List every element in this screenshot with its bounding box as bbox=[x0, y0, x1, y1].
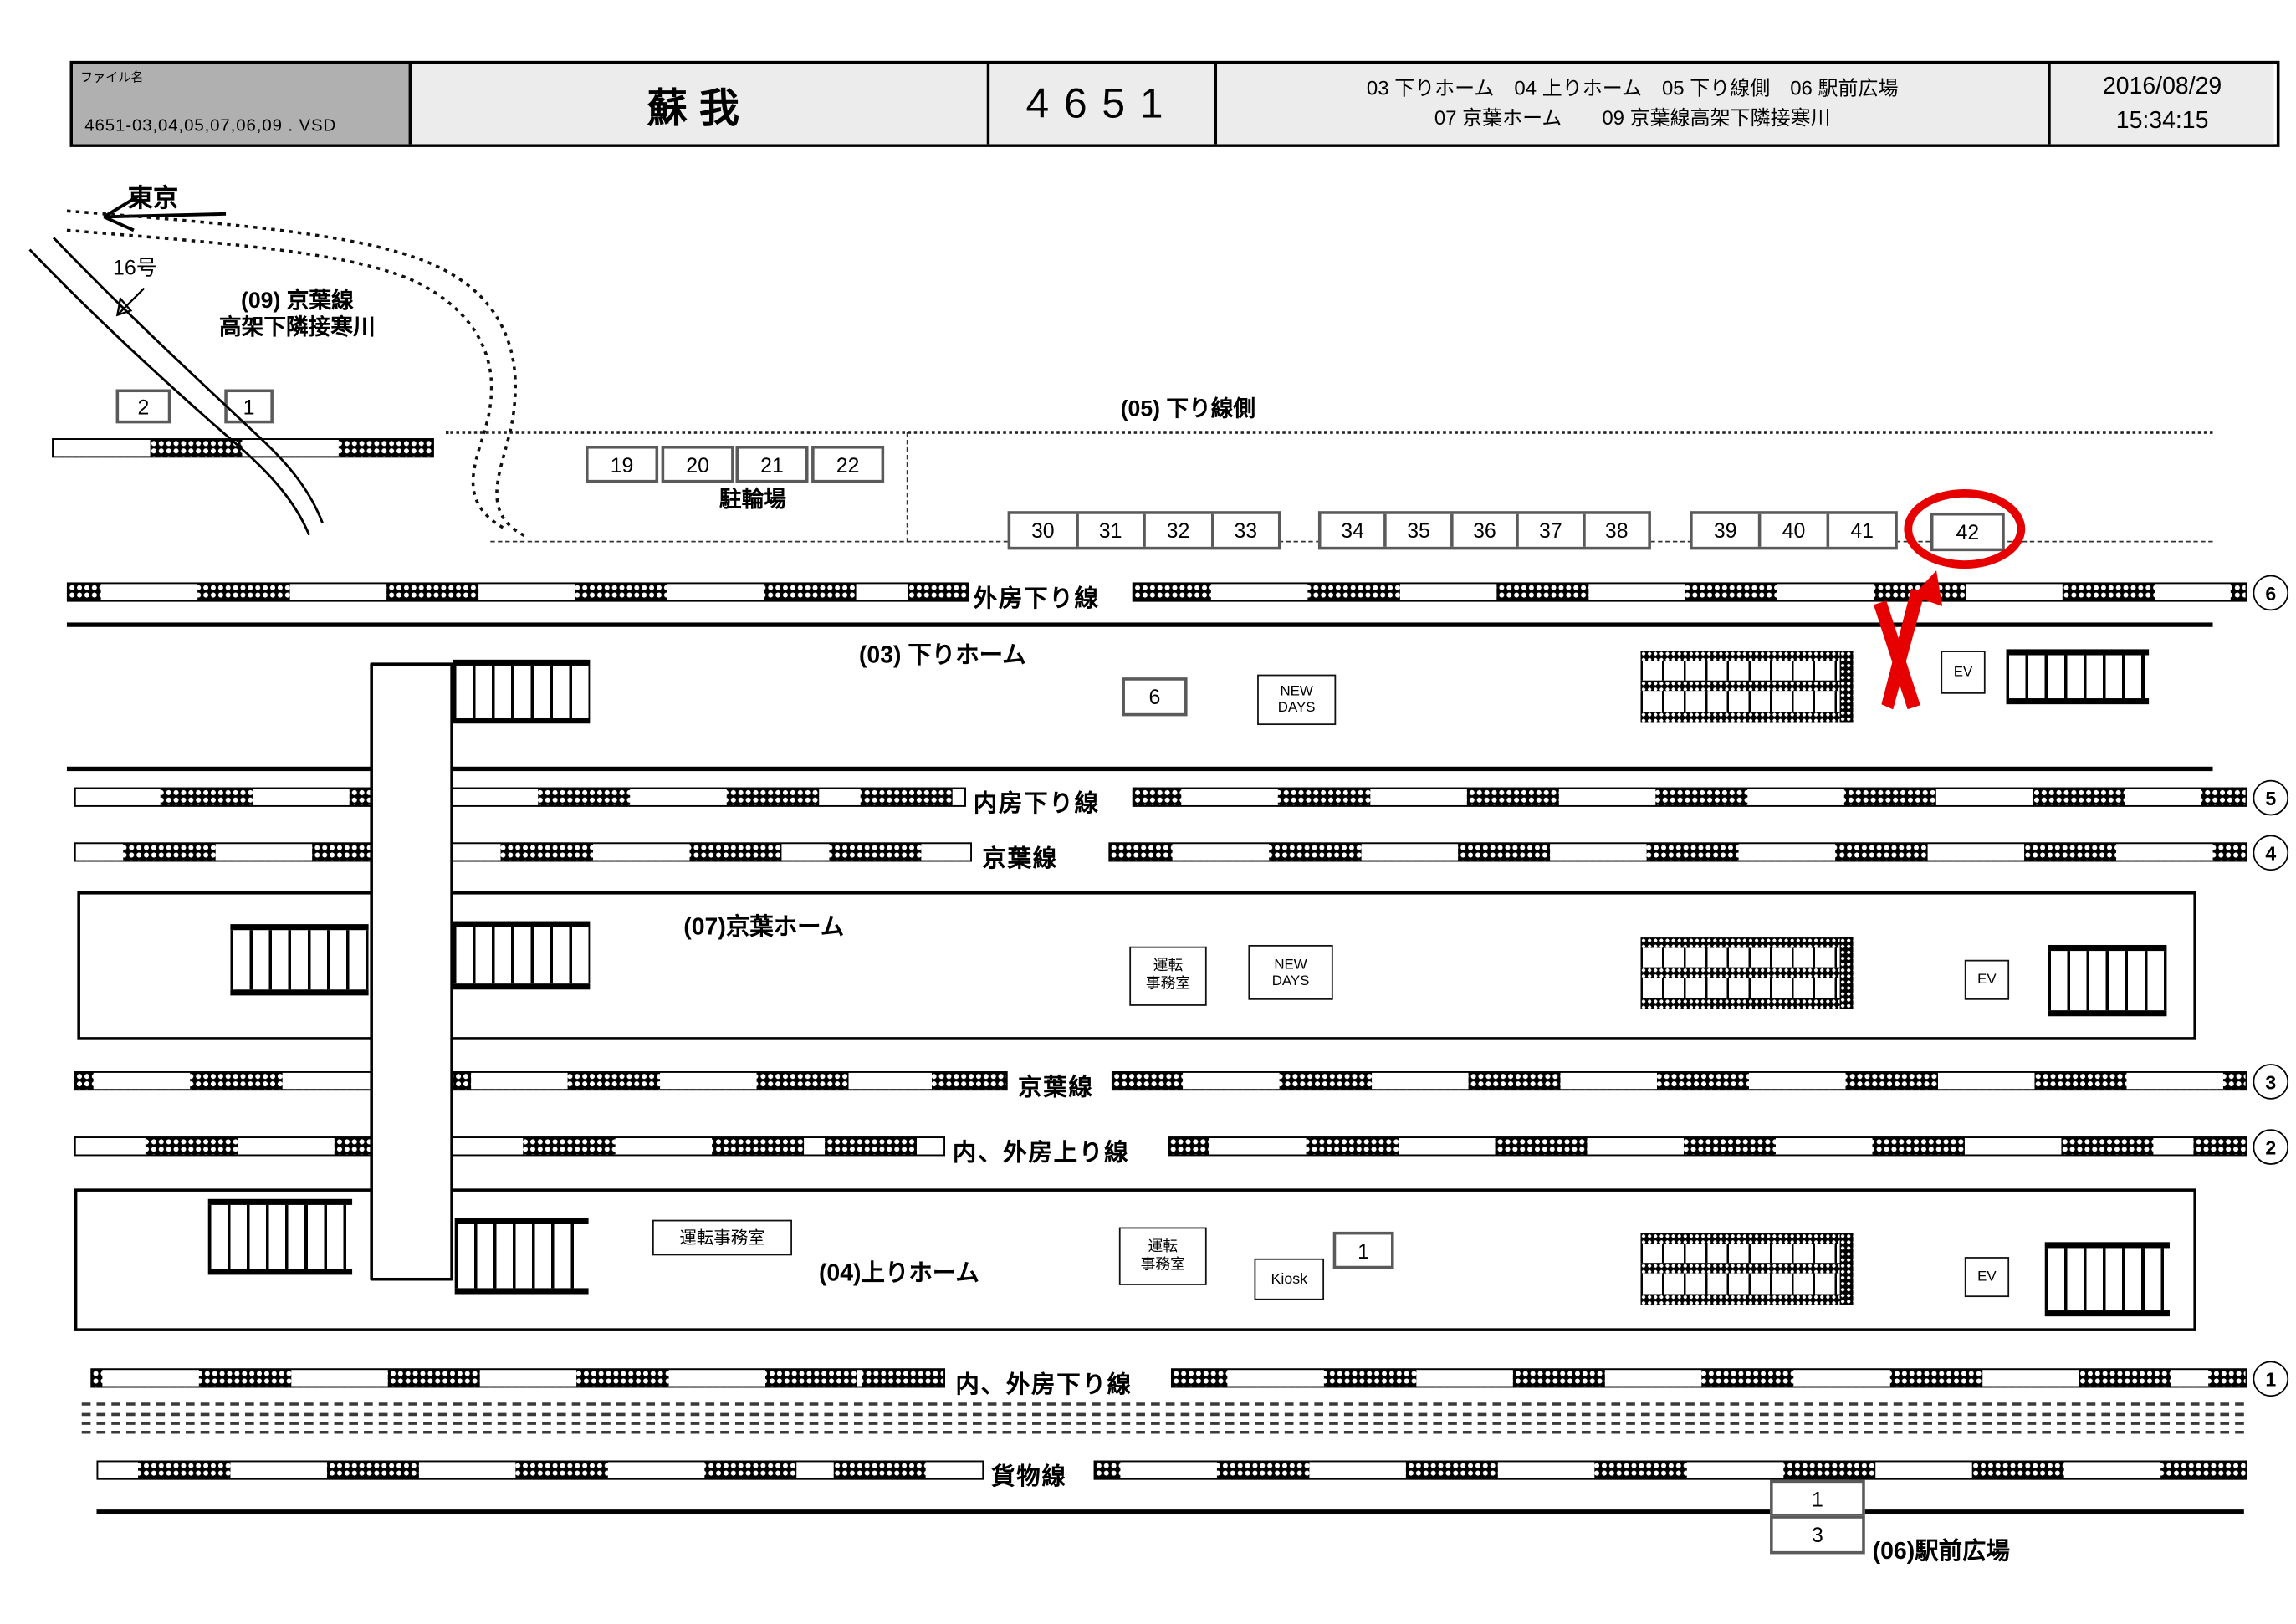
newdays-kiosk-platform03: NEW DAYS bbox=[1257, 675, 1336, 725]
file-name-label: ファイル名 bbox=[80, 69, 144, 86]
newdays-kiosk-platform07: NEW DAYS bbox=[1248, 945, 1332, 1000]
platform-07-label: (07)京葉ホーム bbox=[683, 906, 844, 942]
track-number-2: 2 bbox=[2253, 1129, 2288, 1165]
track-number-4: 4 bbox=[2253, 835, 2288, 871]
drawing-number: 4651 bbox=[989, 64, 1217, 144]
area-05-label: (05) 下り線側 bbox=[1121, 392, 1255, 423]
track-label-sotobo-down: 外房下り線 bbox=[969, 578, 1104, 614]
track-label-uchi-soto-down: 内、外房下り線 bbox=[951, 1364, 1137, 1400]
track-label-keiyo-a: 京葉線 bbox=[978, 838, 1062, 874]
track-keiyo-b-left bbox=[74, 1071, 1008, 1090]
ad-box-32: 32 bbox=[1146, 514, 1214, 547]
track-sotobo-down-left bbox=[67, 582, 969, 601]
stairs-platform07-east bbox=[2048, 945, 2166, 1016]
operations-office-platform04: 運転 事務室 bbox=[1119, 1228, 1207, 1285]
stairs-platform04-west bbox=[208, 1199, 352, 1275]
track-keiyo-a-left bbox=[74, 842, 972, 861]
platform-03-label: (03) 下りホーム bbox=[859, 635, 1026, 671]
track-uchibo-down-right bbox=[1133, 788, 2247, 807]
ad-box-40: 40 bbox=[1761, 514, 1829, 547]
ad-strip-39-41: 39 40 41 bbox=[1690, 511, 1898, 549]
date-value: 2016/08/29 bbox=[2051, 70, 2274, 105]
datetime-cell: 2016/08/29 15:34:15 bbox=[2051, 64, 2274, 144]
platform-04-label: (04)上りホーム bbox=[819, 1253, 979, 1289]
ad-strip-30-33: 30 31 32 33 bbox=[1008, 511, 1281, 549]
station-south-boundary bbox=[96, 1509, 2243, 1514]
track-label-freight: 貨物線 bbox=[987, 1456, 1071, 1492]
plaza-box-1: 1 bbox=[1770, 1480, 1865, 1517]
ad-box-22: 22 bbox=[811, 446, 884, 483]
area-09-label: (09) 京葉線 高架下隣接寒川 bbox=[178, 289, 416, 342]
legend-cell: 03 下りホーム 04 上りホーム 05 下り線側 06 駅前広場 07 京葉ホ… bbox=[1217, 64, 2051, 144]
stairs-platform03-east bbox=[2007, 649, 2150, 704]
track-freight-right bbox=[1094, 1460, 2247, 1479]
track-uchi-soto-down-right bbox=[1171, 1368, 2247, 1387]
zone05-top-boundary bbox=[446, 431, 2212, 434]
station-diagram-canvas: ファイル名 4651-03,04,05,07,06,09 . VSD 蘇我 46… bbox=[0, 0, 2296, 1624]
track-keiyo-a-right bbox=[1108, 842, 2247, 861]
track-keiyo-b-right bbox=[1112, 1071, 2247, 1090]
ad-box-19: 19 bbox=[586, 446, 658, 483]
ad-strip-34-38: 34 35 36 37 38 bbox=[1318, 511, 1651, 549]
ad-box-31: 31 bbox=[1078, 514, 1146, 547]
route-16-label: 16号 bbox=[113, 253, 157, 283]
route16-road bbox=[30, 237, 323, 534]
track-to-tokyo bbox=[52, 438, 434, 457]
escalator-platform03 bbox=[1640, 651, 1853, 722]
track-number-1: 1 bbox=[2253, 1361, 2288, 1397]
stairs-platform04-east bbox=[2045, 1242, 2170, 1316]
ad-box-33: 33 bbox=[1214, 514, 1278, 547]
ad-box-1-platform04: 1 bbox=[1333, 1232, 1394, 1269]
ad-box-20: 20 bbox=[662, 446, 734, 483]
stairs-platform07-west bbox=[230, 924, 368, 995]
track-label-uchi-soto-up: 内、外房上り線 bbox=[949, 1132, 1134, 1168]
elevator-platform07: EV bbox=[1965, 960, 2009, 1000]
platform03-top-edge bbox=[67, 622, 2213, 626]
siding-dash-4 bbox=[82, 1431, 2244, 1434]
track-uchi-soto-down-left bbox=[90, 1368, 945, 1387]
track-label-uchibo-down: 内房下り線 bbox=[969, 783, 1104, 819]
siding-dash-3 bbox=[82, 1422, 2244, 1425]
stairs-platform03 bbox=[453, 660, 590, 723]
ad-box-34: 34 bbox=[1321, 514, 1387, 547]
title-block: ファイル名 4651-03,04,05,07,06,09 . VSD 蘇我 46… bbox=[70, 61, 2280, 147]
time-value: 15:34:15 bbox=[2051, 104, 2274, 138]
elevator-platform04: EV bbox=[1965, 1257, 2009, 1297]
ad-box-37: 37 bbox=[1519, 514, 1585, 547]
track-uchibo-down-left bbox=[74, 788, 966, 807]
siding-dash-2 bbox=[82, 1413, 2244, 1417]
operations-office-platform07: 運転 事務室 bbox=[1129, 947, 1206, 1006]
kiosk-platform04: Kiosk bbox=[1255, 1259, 1325, 1300]
track-uchi-soto-up-right bbox=[1168, 1136, 2247, 1156]
plaza-06-label: (06)駅前広場 bbox=[1873, 1530, 2010, 1566]
bicycle-parking-label: 駐輪場 bbox=[719, 483, 786, 513]
plaza-box-3: 3 bbox=[1770, 1515, 1865, 1554]
ad-box-42-highlighted: 42 bbox=[1930, 513, 2005, 551]
track-uchi-soto-up-left bbox=[74, 1136, 945, 1156]
ad-box-30: 30 bbox=[1010, 514, 1078, 547]
ad-box-39: 39 bbox=[1693, 514, 1762, 547]
ad-box-6: 6 bbox=[1122, 677, 1187, 716]
ad-box-1: 1 bbox=[224, 389, 274, 423]
legend-line-1: 03 下りホーム 04 上りホーム 05 下り線側 06 駅前広場 bbox=[1217, 74, 2048, 105]
station-title: 蘇我 bbox=[412, 64, 989, 144]
escalator-platform04 bbox=[1640, 1233, 1853, 1305]
file-name-value: 4651-03,04,05,07,06,09 . VSD bbox=[84, 117, 336, 135]
ad-box-41: 41 bbox=[1829, 514, 1895, 547]
zone05-divider bbox=[907, 432, 908, 542]
direction-tokyo-label: 東京 bbox=[128, 176, 178, 213]
track-label-keiyo-b: 京葉線 bbox=[1014, 1067, 1098, 1103]
legend-line-2: 07 京葉ホーム 09 京葉線高架下隣接寒川 bbox=[1217, 104, 2048, 134]
siding-dash-1 bbox=[82, 1402, 2244, 1406]
escalator-platform07 bbox=[1640, 937, 1853, 1009]
elevator-platform03: EV bbox=[1941, 651, 1985, 694]
ad-box-2: 2 bbox=[116, 389, 171, 423]
track-number-5: 5 bbox=[2253, 780, 2288, 816]
file-name-cell: ファイル名 4651-03,04,05,07,06,09 . VSD bbox=[73, 64, 412, 144]
track-sotobo-down-right bbox=[1133, 582, 2247, 601]
stairs-platform07-mid bbox=[453, 922, 590, 990]
track-number-6: 6 bbox=[2253, 575, 2288, 611]
track-freight-left bbox=[96, 1460, 984, 1479]
overpass-corridor bbox=[370, 662, 453, 1280]
track-number-3: 3 bbox=[2253, 1064, 2288, 1100]
ad-box-21: 21 bbox=[735, 446, 808, 483]
ad-box-38: 38 bbox=[1585, 514, 1648, 547]
operations-office-platform04-west: 運転事務室 bbox=[652, 1220, 792, 1256]
stairs-platform04-mid bbox=[455, 1218, 589, 1295]
route16-pointer-icon bbox=[117, 289, 144, 315]
ad-box-35: 35 bbox=[1387, 514, 1453, 547]
ad-box-36: 36 bbox=[1453, 514, 1519, 547]
